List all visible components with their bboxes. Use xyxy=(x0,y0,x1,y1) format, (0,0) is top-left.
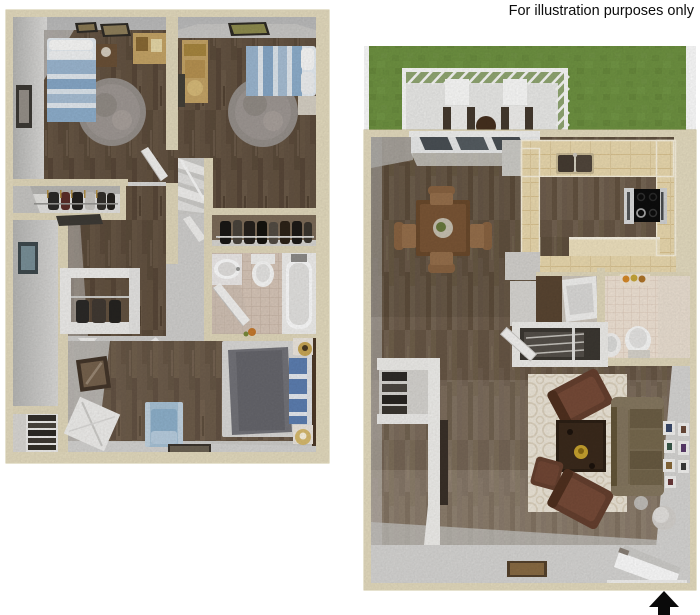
svg-text:For illustration purposes only: For illustration purposes only xyxy=(509,3,695,19)
